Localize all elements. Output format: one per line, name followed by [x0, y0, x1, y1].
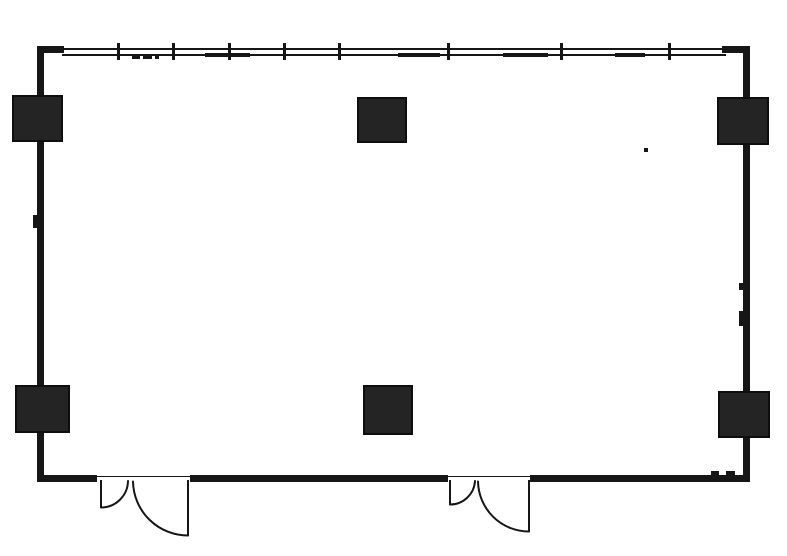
- bottom-wall-bump-1: [711, 471, 719, 476]
- column-bottom-right: [718, 391, 770, 438]
- top-wall-right-stub: [722, 46, 750, 53]
- window-line-heavy-segment: [398, 53, 440, 57]
- column-top-right: [717, 97, 769, 145]
- door-swing-arcs-layer: [0, 0, 787, 556]
- bottom-wall-left-segment: [37, 475, 97, 482]
- window-line-heavy-segment: [205, 53, 250, 57]
- right-double-door-leaf-panel: [528, 480, 531, 532]
- window-mullion-tick: [283, 43, 286, 60]
- left-wall-notch: [33, 215, 38, 228]
- column-top-middle: [357, 97, 407, 143]
- left-double-door-leaf-panel: [187, 480, 190, 536]
- window-mullion-tick: [668, 43, 671, 60]
- window-sill-dash-3: [155, 56, 159, 59]
- right-wall-notch-2: [739, 311, 744, 326]
- window-mullion-tick: [172, 43, 175, 60]
- window-line-heavy-segment: [503, 53, 548, 57]
- window-sill-dash-1: [132, 56, 140, 59]
- window-line-heavy-segment: [615, 53, 645, 57]
- bottom-wall-right-segment: [530, 475, 750, 482]
- column-top-left: [12, 95, 63, 142]
- bottom-wall-middle-segment: [190, 475, 448, 482]
- right-double-door-swing-arc: [478, 482, 529, 532]
- window-sill-dash-2: [143, 56, 152, 59]
- right-double-door-swing-arc: [450, 481, 475, 505]
- bottom-wall-bump-2: [726, 471, 735, 476]
- right-double-door-threshold: [448, 476, 530, 478]
- window-outer-line: [62, 48, 726, 50]
- right-wall-notch-1: [739, 283, 744, 290]
- window-mullion-tick: [338, 43, 341, 60]
- window-mullion-tick: [560, 43, 563, 60]
- top-wall-left-stub: [37, 46, 64, 53]
- right-double-door-leaf-panel: [449, 480, 452, 505]
- left-double-door-swing-arc: [101, 481, 128, 508]
- column-bottom-left: [15, 385, 70, 433]
- column-bottom-middle: [363, 385, 413, 435]
- left-double-door-threshold: [97, 476, 190, 478]
- left-double-door-leaf-panel: [100, 480, 103, 508]
- window-mullion-tick: [447, 43, 450, 60]
- window-mullion-tick: [228, 43, 231, 60]
- window-mullion-tick: [117, 43, 120, 60]
- left-double-door-swing-arc: [133, 482, 188, 536]
- floor-plan-canvas: [0, 0, 787, 556]
- ink-speck: [644, 148, 648, 152]
